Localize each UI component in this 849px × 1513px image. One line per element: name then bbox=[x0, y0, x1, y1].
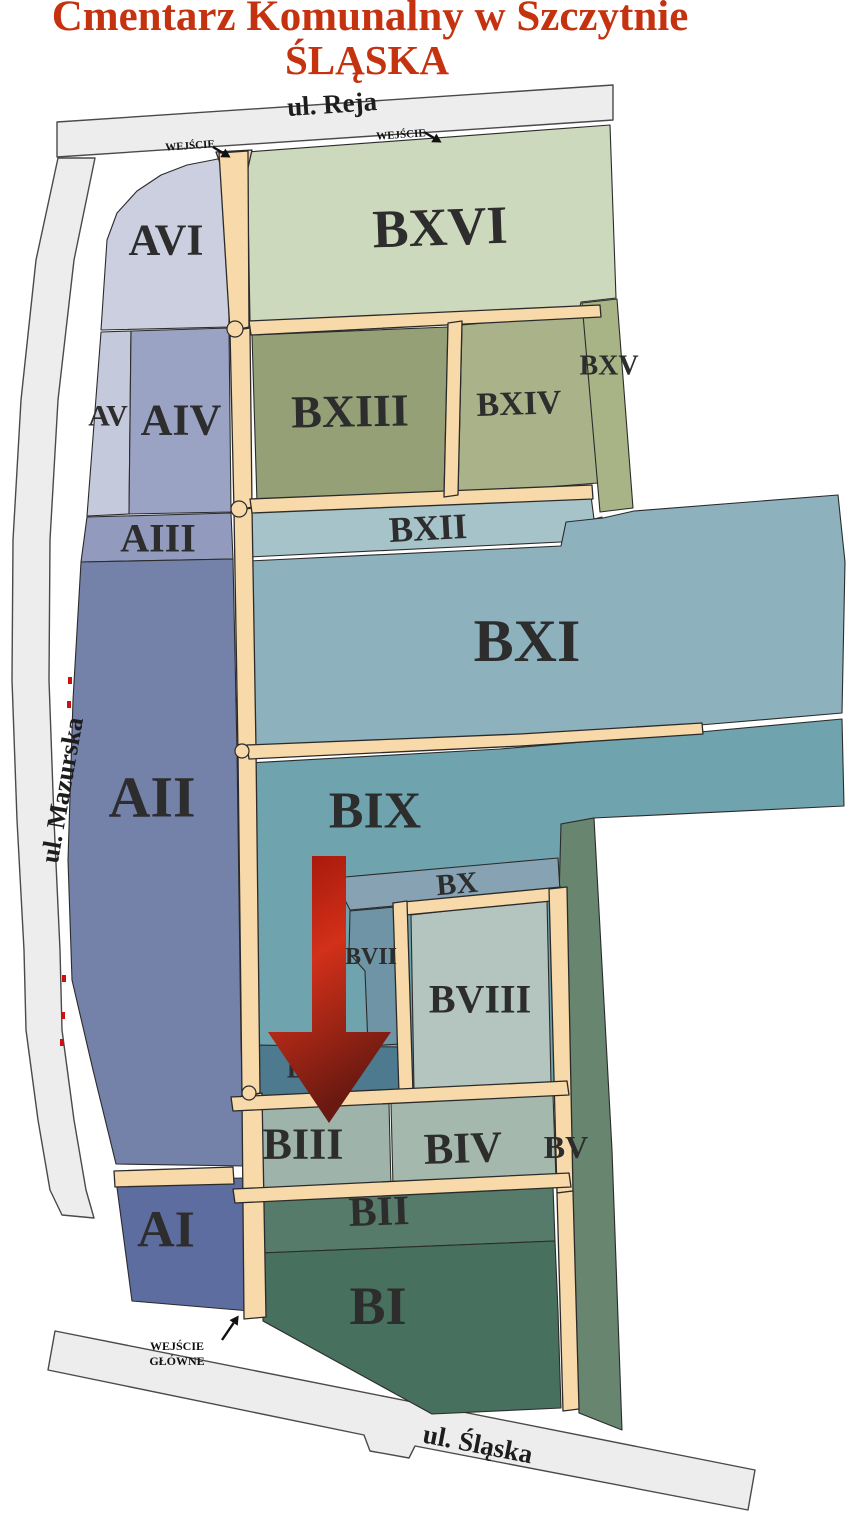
cemetery-map-page: ul. Rejaul. Mazurskaul. ŚląskaAVIBXVIAVA… bbox=[0, 0, 849, 1513]
entrance-label-main: WEJŚCIE bbox=[150, 1339, 204, 1353]
section-bxv-label: BXV bbox=[579, 351, 638, 382]
walkway-junction bbox=[242, 1086, 256, 1100]
section-aiii-label: AIII bbox=[120, 516, 196, 561]
section-avi-label: AVI bbox=[128, 216, 203, 265]
walkway bbox=[234, 508, 256, 753]
entrance-label-north-west: WEJŚCIE bbox=[165, 138, 215, 153]
section-aii bbox=[68, 559, 245, 1166]
walkway bbox=[114, 1167, 234, 1187]
cemetery-map: ul. Rejaul. Mazurskaul. ŚląskaAVIBXVIAVA… bbox=[0, 0, 849, 1513]
section-bvii-label: BVII bbox=[345, 944, 397, 970]
section-bxiii-label: BXIII bbox=[291, 384, 409, 437]
section-bii-label: BII bbox=[348, 1188, 410, 1236]
section-bx-label: BX bbox=[435, 866, 480, 903]
gate-marker bbox=[68, 677, 72, 684]
section-bi-label: BI bbox=[349, 1276, 406, 1336]
section-ai-label: AI bbox=[137, 1202, 195, 1259]
section-bxii-label: BXII bbox=[388, 506, 468, 550]
section-bxi-label: BXI bbox=[474, 608, 581, 674]
walkway-junction bbox=[235, 744, 249, 758]
walkway-junction bbox=[231, 501, 247, 517]
gate-marker bbox=[67, 701, 71, 708]
gate-marker bbox=[61, 1012, 65, 1019]
section-bxiv-label: BXIV bbox=[476, 384, 563, 424]
walkway bbox=[238, 749, 260, 1097]
section-bxvi-label: BXVI bbox=[371, 195, 508, 260]
section-aii-label: AII bbox=[108, 765, 195, 830]
section-bix-label: BIX bbox=[329, 783, 421, 840]
entrance-label-main: GŁÓWNE bbox=[149, 1354, 204, 1368]
section-av-label: AV bbox=[88, 400, 128, 433]
gate-marker bbox=[60, 1039, 64, 1046]
entrance-arrow-icon-main bbox=[222, 1323, 234, 1340]
section-aiv-label: AIV bbox=[141, 396, 222, 445]
section-bv-label: BV bbox=[544, 1129, 588, 1165]
section-biii-label: BIII bbox=[263, 1120, 344, 1169]
road-ul-reja-label: ul. Reja bbox=[286, 86, 378, 122]
section-bviii-label: BVIII bbox=[429, 977, 531, 1022]
gate-marker bbox=[62, 975, 66, 982]
title-line2: ŚLĄSKA bbox=[0, 39, 734, 82]
title-line1: Cmentarz Komunalny w Szczytnie bbox=[0, 0, 740, 39]
walkway bbox=[230, 328, 252, 511]
section-biv-label: BIV bbox=[423, 1122, 503, 1174]
walkway-junction bbox=[227, 321, 243, 337]
